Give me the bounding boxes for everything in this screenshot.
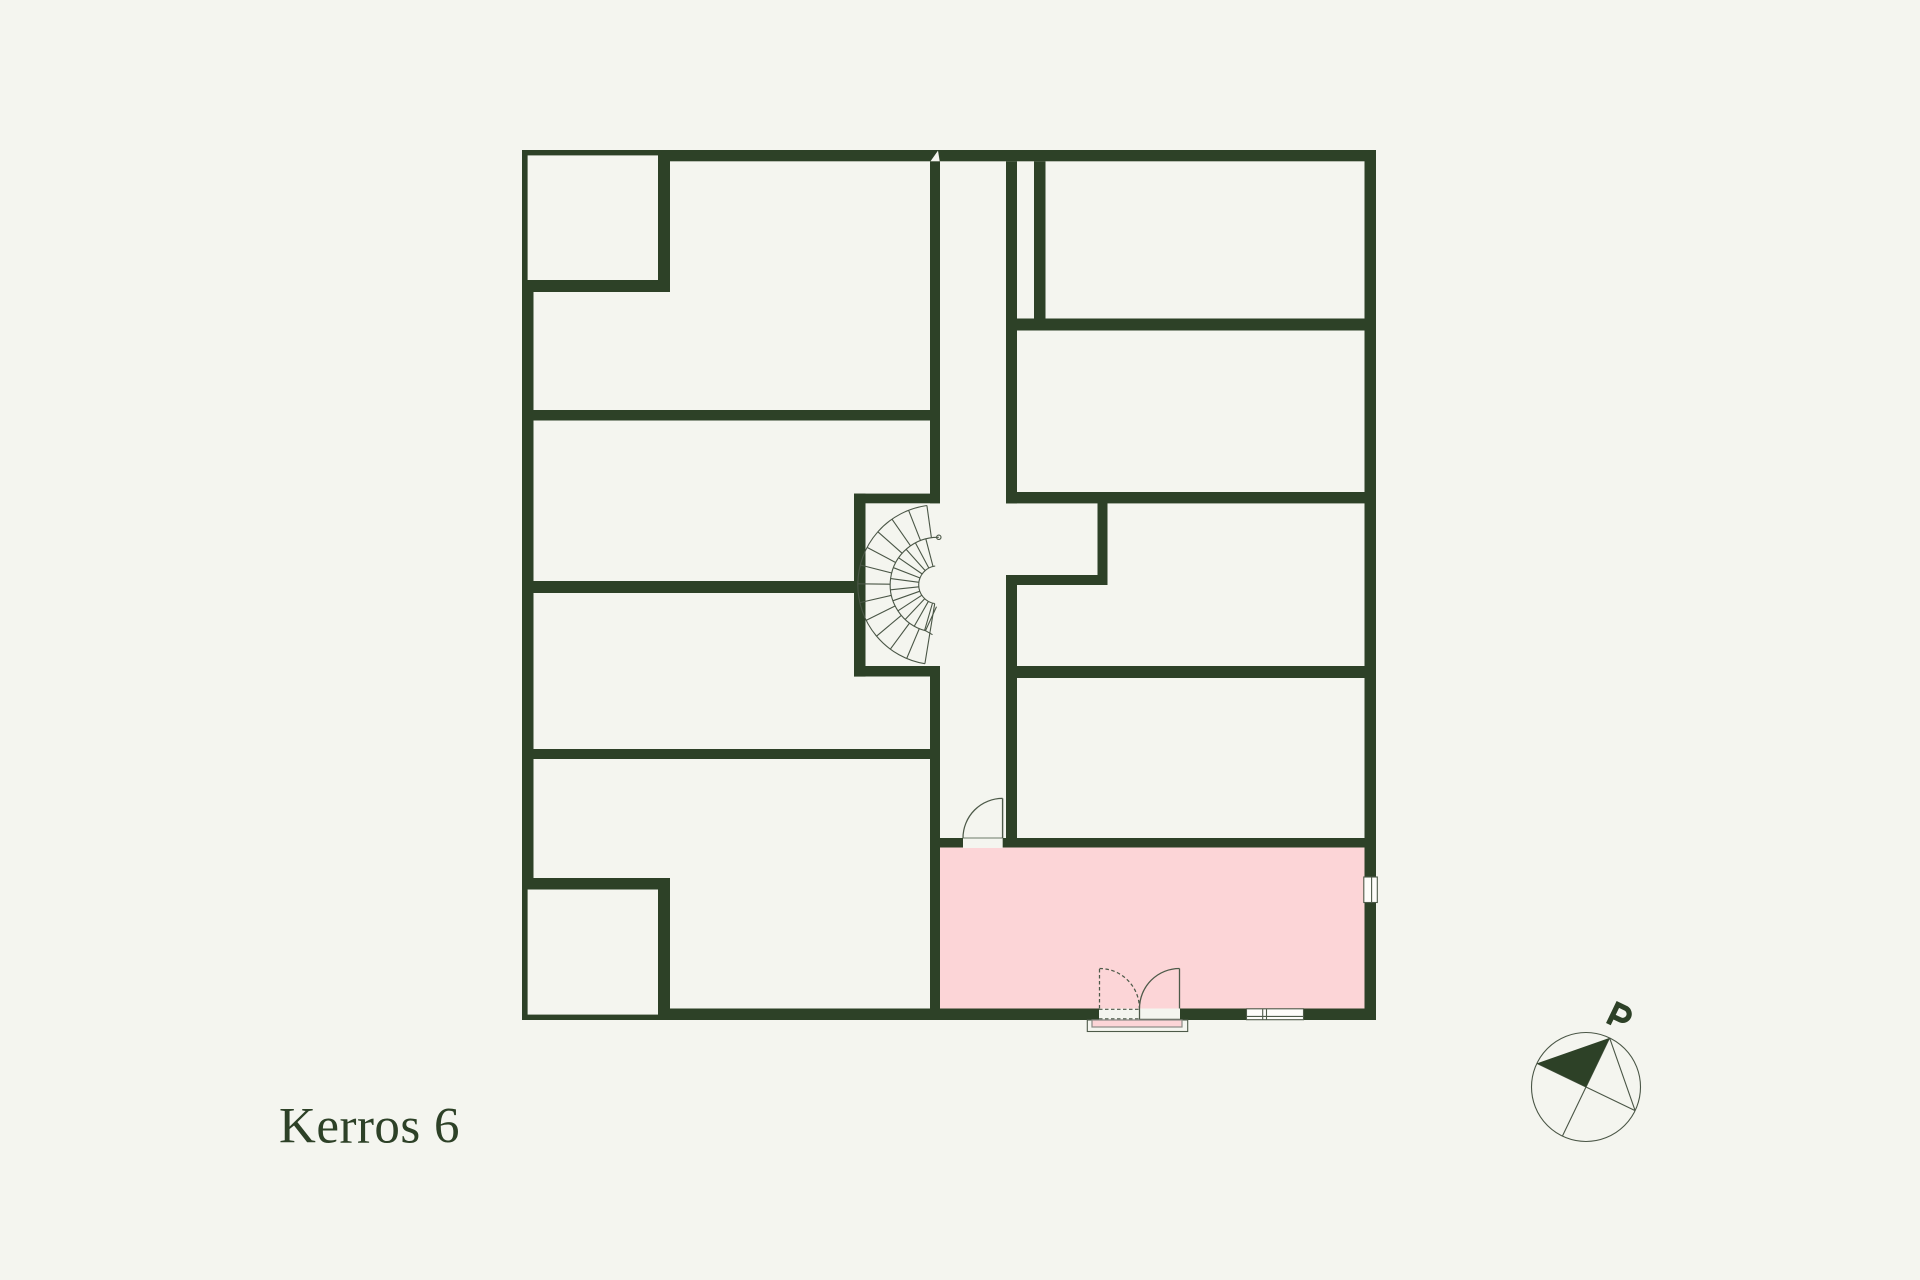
svg-text:Kerros 6: Kerros 6 xyxy=(279,1099,460,1155)
